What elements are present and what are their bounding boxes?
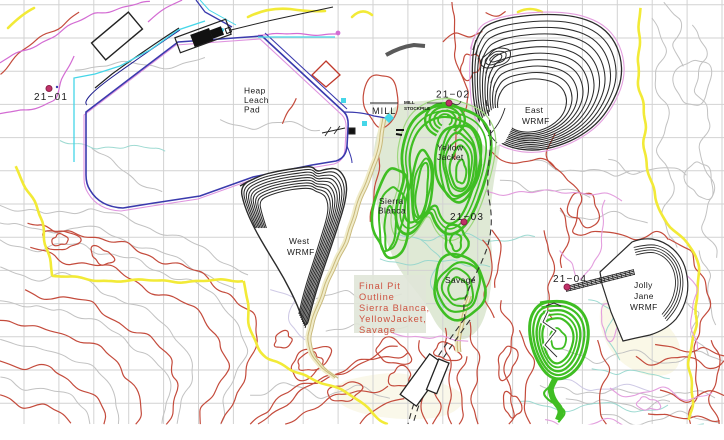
svg-text:Savage: Savage bbox=[359, 325, 396, 335]
svg-text:West: West bbox=[289, 236, 310, 246]
svg-text:Jolly: Jolly bbox=[634, 280, 653, 290]
svg-text:Savage: Savage bbox=[445, 275, 476, 285]
svg-text:WRMF: WRMF bbox=[287, 247, 315, 257]
svg-text:YellowJacket,: YellowJacket, bbox=[359, 314, 427, 324]
svg-text:Jane: Jane bbox=[634, 291, 654, 301]
svg-text:21−02: 21−02 bbox=[436, 90, 470, 101]
svg-text:Final Pit: Final Pit bbox=[359, 281, 401, 291]
svg-text:21−01: 21−01 bbox=[34, 92, 68, 103]
svg-text:WRMF: WRMF bbox=[630, 302, 658, 312]
svg-text:MILL: MILL bbox=[372, 106, 396, 116]
svg-text:Blanca: Blanca bbox=[378, 206, 406, 216]
svg-text:Sierra Blanca,: Sierra Blanca, bbox=[359, 303, 430, 313]
svg-text:Outline: Outline bbox=[359, 292, 395, 302]
svg-text:Pad: Pad bbox=[244, 104, 260, 114]
svg-text:21−04: 21−04 bbox=[553, 274, 587, 285]
svg-text:East: East bbox=[525, 105, 544, 115]
svg-text:21−03: 21−03 bbox=[450, 212, 484, 223]
svg-text:Jacket: Jacket bbox=[437, 152, 464, 162]
svg-text:Sierra: Sierra bbox=[379, 196, 404, 206]
svg-text:MILL: MILL bbox=[404, 100, 415, 105]
svg-text:STOCKPILE: STOCKPILE bbox=[404, 106, 430, 111]
svg-text:WRMF: WRMF bbox=[522, 116, 550, 126]
